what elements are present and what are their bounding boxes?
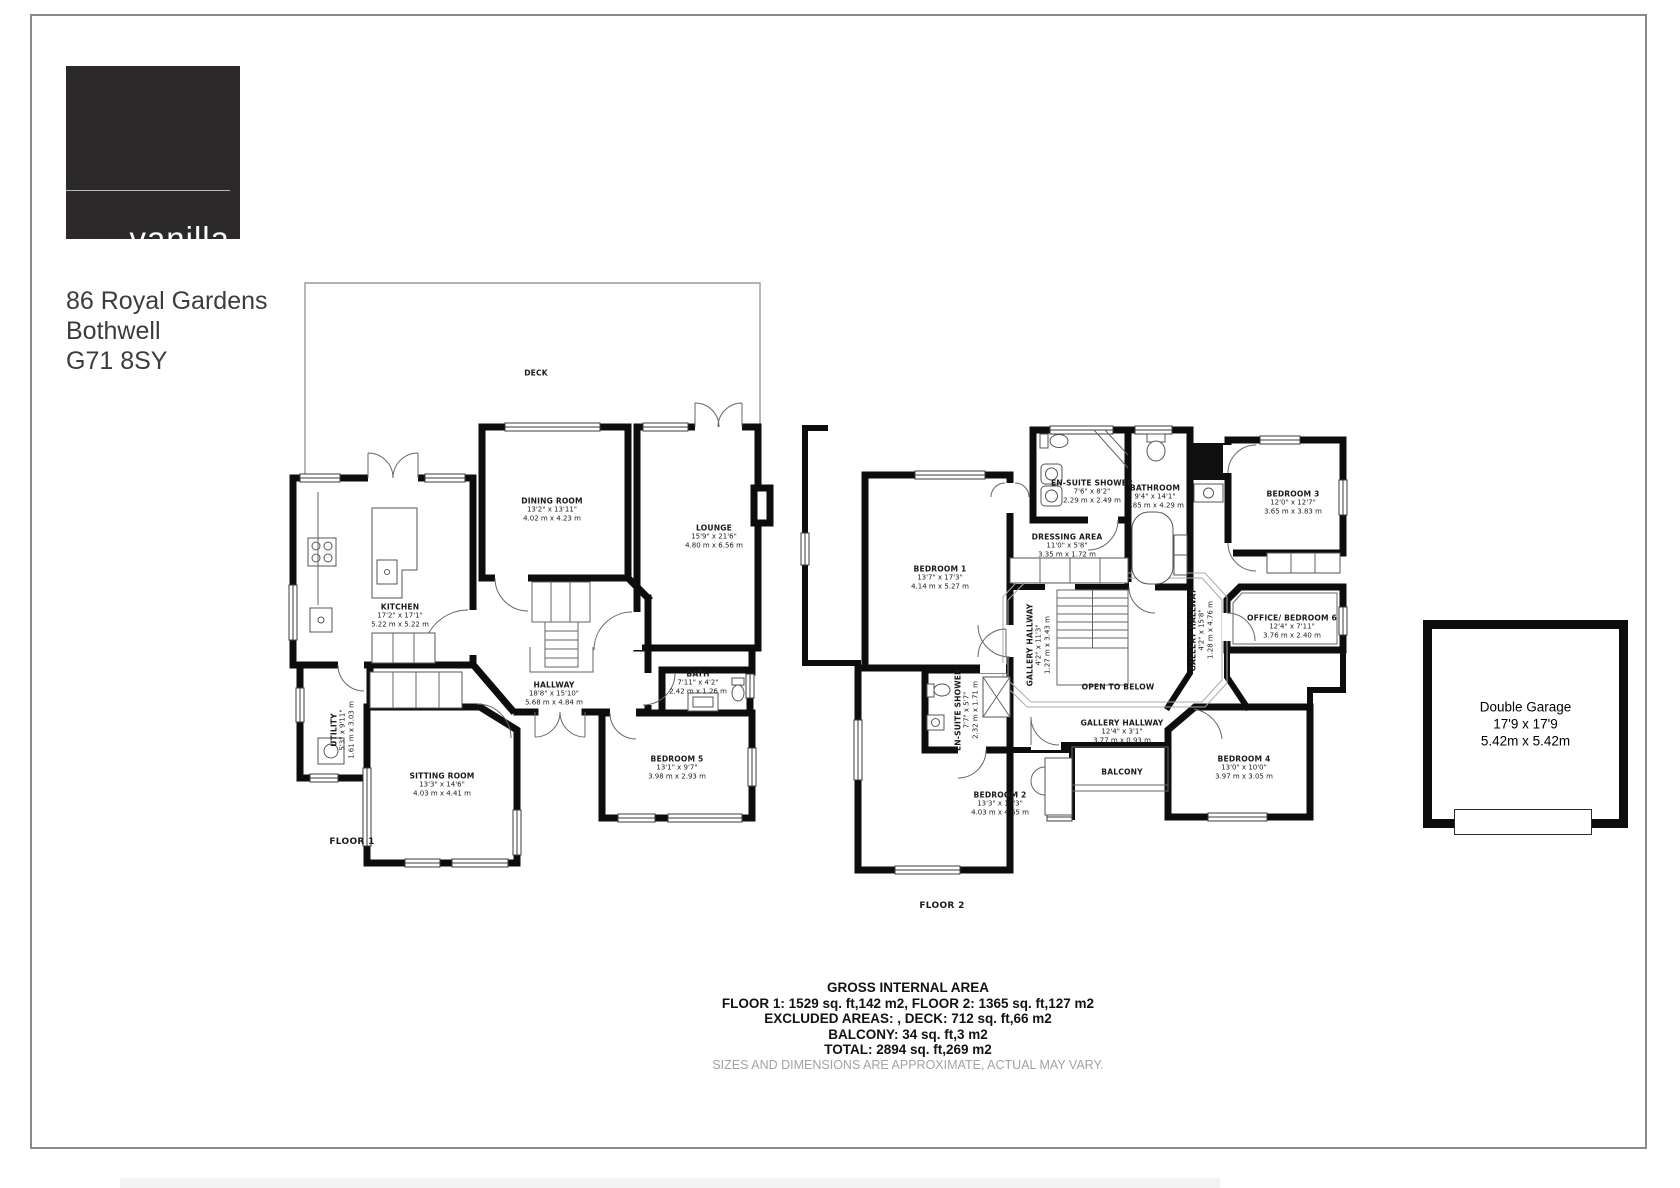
room-label-bedroom3: BEDROOM 3 12'0" x 12'7" 3.65 m x 3.83 m xyxy=(1264,490,1322,517)
garage-door xyxy=(1454,809,1592,835)
logo-brand-top: vanilla xyxy=(129,220,230,239)
room-label-bedroom4: BEDROOM 4 13'0" x 10'0" 3.97 m x 3.05 m xyxy=(1215,755,1273,782)
floor2-staircase xyxy=(1057,590,1128,685)
address-line-3: G71 8SY xyxy=(66,346,268,376)
floor2-caption: FLOOR 2 xyxy=(919,901,964,911)
garage-label: Double Garage 17'9 x 17'9 5.42m x 5.42m xyxy=(1480,699,1572,750)
room-label-hallway: HALLWAY 18'8" x 15'10" 5.68 m x 4.84 m xyxy=(525,681,583,708)
property-address: 86 Royal Gardens Bothwell G71 8SY xyxy=(66,286,268,376)
room-label-ensuite2: EN-SUITE SHOWER 7'7" x 5'7" 2.32 m x 1.7… xyxy=(954,669,981,751)
room-label-dressing: DRESSING AREA 11'0" x 5'8" 3.35 m x 1.72… xyxy=(1032,533,1103,560)
logo-divider-line xyxy=(66,190,230,191)
floor2-plan xyxy=(795,385,1355,900)
vanilla-square-logo: vanilla square xyxy=(66,66,240,239)
room-label-bedroom2: BEDROOM 2 13'3" x 15'3" 4.03 m x 4.65 m xyxy=(971,791,1029,818)
ensuite-toilet xyxy=(1050,435,1068,448)
area-disclaimer: SIZES AND DIMENSIONS ARE APPROXIMATE, AC… xyxy=(712,1058,1103,1074)
dressing-closets xyxy=(1010,558,1128,583)
ensuite2-toilet-tank xyxy=(927,684,934,697)
label-open-to-below: OPEN TO BELOW xyxy=(1082,682,1155,691)
floor1-staircase xyxy=(530,582,593,672)
room-label-bedroom5: BEDROOM 5 13'1" x 9'7" 3.98 m x 2.93 m xyxy=(648,755,706,782)
toilet xyxy=(732,685,744,701)
double-garage: Double Garage 17'9 x 17'9 5.42m x 5.42m xyxy=(1423,620,1628,828)
address-line-2: Bothwell xyxy=(66,316,268,346)
address-line-1: 86 Royal Gardens xyxy=(66,286,268,316)
landing-wardrobe xyxy=(1045,758,1072,815)
area-line-balcony: BALCONY: 34 sq. ft,3 m2 xyxy=(712,1027,1103,1043)
room-label-bathroom: BATHROOM 9'4" x 14'1" 2.85 m x 4.29 m xyxy=(1126,484,1184,511)
area-summary: GROSS INTERNAL AREA FLOOR 1: 1529 sq. ft… xyxy=(712,980,1103,1074)
room-label-bath: BATH 7'11" x 4'2" 2.42 m x 1.26 m xyxy=(669,670,727,697)
toilet-tank xyxy=(732,678,744,685)
store-closet xyxy=(1192,443,1225,480)
room-label-lounge: LOUNGE 15'9" x 21'6" 4.80 m x 6.56 m xyxy=(685,524,743,551)
room-label-dining: DINING ROOM 13'2" x 13'11" 4.02 m x 4.23… xyxy=(521,497,583,524)
area-line-total: TOTAL: 2894 sq. ft,269 m2 xyxy=(712,1042,1103,1058)
bedroom3-wardrobes xyxy=(1267,553,1340,573)
page-bottom-artifact xyxy=(120,1178,1220,1188)
bathroom-toilet xyxy=(1147,441,1165,461)
floorplan-page: { "logo": { "brand_line1": "vanilla", "b… xyxy=(0,0,1680,1188)
floor1-caption: FLOOR 1 xyxy=(329,837,374,847)
room-label-gallery-left: GALLERY HALLWAY 4'2" x 11'3" 1.27 m x 3.… xyxy=(1026,604,1053,687)
room-label-office: OFFICE/ BEDROOM 6 12'4" x 7'11" 3.76 m x… xyxy=(1247,614,1337,641)
area-line-excluded: EXCLUDED AREAS: , DECK: 712 sq. ft,66 m2 xyxy=(712,1011,1103,1027)
room-label-sitting: SITTING ROOM 13'3" x 14'6" 4.03 m x 4.41… xyxy=(409,772,474,799)
bathtub xyxy=(1132,512,1173,584)
stove xyxy=(308,538,336,566)
room-label-balcony: BALCONY xyxy=(1101,767,1142,776)
kitchen-units xyxy=(372,633,435,663)
room-label-bedroom1: BEDROOM 1 13'7" x 17'3" 4.14 m x 5.27 m xyxy=(911,565,969,592)
ensuite-toilet-tank xyxy=(1040,434,1048,448)
ensuite2-toilet xyxy=(934,684,950,696)
room-label-utility: UTILITY 5'3" x 9'11" 1.61 m x 3.03 m xyxy=(330,701,357,759)
room-label-gallery-right: GALLERY HALLWAY 4'2" x 15'8" 1.28 m x 4.… xyxy=(1189,589,1216,672)
area-title: GROSS INTERNAL AREA xyxy=(712,980,1103,996)
room-label-deck: DECK xyxy=(524,368,548,377)
room-label-kitchen: KITCHEN 17'2" x 17'1" 5.22 m x 5.22 m xyxy=(371,603,429,630)
room-label-gallery-main: GALLERY HALLWAY 12'4" x 3'1" 3.77 m x 0.… xyxy=(1081,719,1164,746)
room-label-ensuite1: EN-SUITE SHOWER 7'6" x 8'2" 2.29 m x 2.4… xyxy=(1051,479,1133,506)
area-line-floors: FLOOR 1: 1529 sq. ft,142 m2, FLOOR 2: 13… xyxy=(712,996,1103,1012)
